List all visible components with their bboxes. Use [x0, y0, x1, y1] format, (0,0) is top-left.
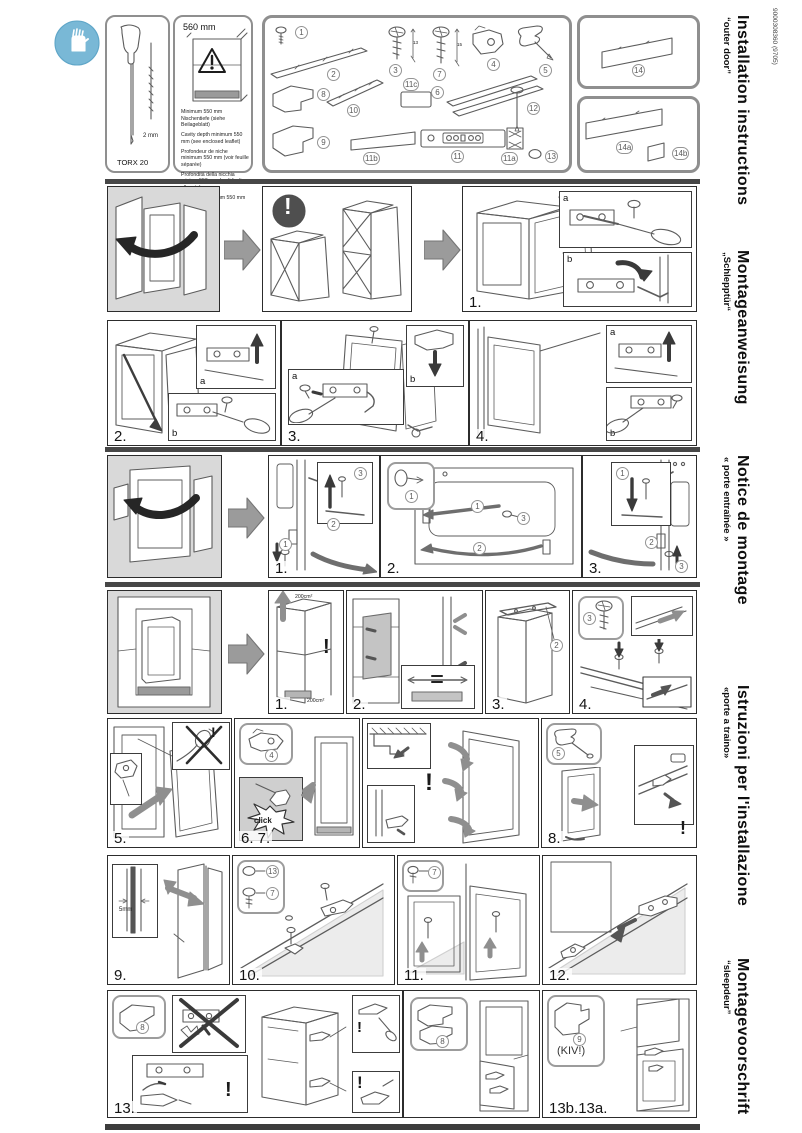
arrow-right-icon — [224, 228, 262, 272]
step-6-7-panel: 4 click 6. 7. — [234, 718, 360, 848]
callout-8: 8 — [436, 1035, 449, 1048]
step-3-panel: a b 3. — [281, 320, 469, 446]
exclamation-icon: ! — [284, 195, 292, 218]
slide-step-2-panel: 1 1 3 2 2. — [380, 455, 582, 578]
step-4-panel: a b 4. — [469, 320, 697, 446]
torx-label: TORX 20 — [117, 159, 148, 167]
slide-step-3-number: 3. — [587, 561, 604, 576]
exclamation-icon: ! — [357, 1020, 362, 1035]
step-9-panel: 5mm 9. — [107, 855, 230, 985]
door-align-panel: ! — [362, 718, 539, 848]
niche-fridge-sketch — [108, 591, 219, 711]
heading-it-title: Istruzioni per l'installazione — [733, 685, 751, 906]
screw7-length: 15 — [457, 42, 462, 47]
gloves-icon — [52, 18, 102, 68]
part-2-label: 2 — [327, 68, 340, 81]
cover-part-inset: 8 — [112, 995, 166, 1039]
callout-3: 3 — [675, 560, 688, 573]
plug-part-inset: 1 — [387, 462, 435, 510]
step-3-number: 3. — [286, 429, 303, 444]
part-7-label: 7 — [433, 68, 446, 81]
cover-pry-inset: ! — [352, 995, 400, 1053]
warning-triangle-icon — [197, 47, 227, 75]
step-13ab-number: 13b.13a. — [547, 1101, 609, 1116]
exclamation-icon: ! — [211, 725, 216, 739]
step-6-7-number: 6. 7. — [239, 831, 272, 846]
step-10-number: 10. — [237, 968, 262, 983]
callout-13: 13 — [266, 865, 279, 878]
bottom-corner-inset — [367, 785, 415, 843]
step-12-number: 12. — [547, 968, 572, 983]
step-3-inset-b: b — [406, 325, 464, 387]
section-divider — [105, 179, 700, 184]
bracket-down-sketch — [407, 326, 462, 385]
slider-detail-inset — [634, 745, 694, 825]
bracket-up-sketch — [607, 326, 690, 381]
rail-corner-sketch — [632, 597, 691, 634]
kiv-label: (KIV!) — [557, 1045, 585, 1057]
note-fr: Profondeur de niche minimum 550 mm (voir… — [181, 149, 249, 169]
part-1-label: 1 — [295, 26, 308, 39]
screw-part-inset: 3 — [578, 596, 624, 640]
callout-1: 1 — [471, 500, 484, 513]
part-5-label: 5 — [539, 64, 552, 77]
vent-cabinet-sketch — [269, 591, 341, 711]
niche-depth-panel: 560 mm Minimum 550 mm Nischentiefe (sieh… — [173, 15, 253, 173]
torx-tool-panel: 2 mm TORX 20 — [105, 15, 170, 173]
exclamation-icon: ! — [225, 1080, 232, 1100]
callout-3: 3 — [517, 512, 530, 525]
click-label: click — [254, 816, 272, 825]
cover-parts-inset: 8 — [410, 997, 468, 1051]
door-swap-overview-panel — [107, 186, 220, 312]
step-2-inset-a: a — [196, 325, 276, 389]
niche-overview-panel — [107, 590, 222, 714]
cover-fit-inset: ! — [352, 1071, 400, 1113]
step-2-panel: a b 2. — [107, 320, 281, 446]
callout-1: 1 — [279, 538, 292, 551]
note-de: Minimum 550 mm Nischentiefe (siehe Beila… — [181, 109, 249, 129]
exclamation-icon: ! — [425, 771, 433, 795]
part-11b-label: 11b — [363, 152, 380, 165]
vent-step-2-panel: 2. — [346, 590, 483, 714]
step-9-number: 9. — [112, 968, 129, 983]
part-6-label: 6 — [431, 86, 444, 99]
step-1-inset-a: a — [559, 191, 692, 248]
vent-step-2-number: 2. — [351, 697, 368, 712]
bit-size-label: 2 mm — [143, 133, 158, 140]
bracket-remove-sketch — [564, 253, 690, 305]
fridge-lower-door-sketch — [470, 995, 538, 1115]
fridge-two-doors-sketch — [609, 993, 697, 1117]
gap-detail-inset: 5mm — [112, 864, 158, 938]
heading-fr-title: Notice de montage — [733, 455, 751, 605]
clip-part-inset: 5 — [546, 723, 602, 765]
heading-de-subtitle: „Schlepptür“ — [721, 252, 732, 311]
step-2-number: 2. — [112, 429, 129, 444]
part-13-label: 13 — [545, 150, 558, 163]
callout-2: 2 — [645, 536, 658, 549]
step-4-inset-b: b — [606, 387, 692, 441]
part-14-label: 14 — [632, 64, 645, 77]
heading-nl-title: Montagevoorschrift — [733, 958, 751, 1115]
callout-7: 7 — [266, 887, 279, 900]
part-14-panel: 14 — [577, 15, 700, 89]
hinge-icon — [111, 754, 140, 803]
spacing-inset — [401, 665, 475, 709]
gap-size-label: 5mm — [119, 907, 132, 914]
no-plug-icon — [173, 723, 228, 768]
door-swap-sketch — [108, 187, 217, 309]
heading-de-title: Montageanweisung — [733, 250, 751, 405]
slide-door-sketch — [108, 456, 219, 575]
plug-warning-inset: ! — [172, 722, 230, 770]
document-code: 9000308360 (9705) — [771, 8, 778, 65]
step-4-number: 4. — [474, 429, 491, 444]
arrow-right-icon — [228, 496, 266, 540]
arrow-right-icon — [228, 632, 266, 676]
step-13-panel: 8 ! — [107, 990, 403, 1118]
part-11a-label: 11a — [501, 152, 518, 165]
gap-sketch — [113, 865, 156, 936]
heading-it-subtitle: «porte a traino» — [721, 687, 732, 758]
cross-out-icon — [173, 996, 244, 1051]
step-1-inset-b: b — [563, 252, 692, 307]
callout-8: 8 — [136, 1021, 149, 1034]
hinge-part-inset: 4 — [239, 723, 293, 765]
step-4-inset-a: a — [606, 325, 692, 383]
callout-4: 4 — [265, 749, 278, 762]
callout-5: 5 — [552, 747, 565, 760]
step-1-number: 1. — [467, 295, 484, 310]
heading-fr-subtitle: « porte entraînée » — [721, 457, 732, 541]
step-11-number: 11. — [402, 968, 426, 983]
top-gap-sketch — [368, 724, 429, 767]
rail-corner-inset — [631, 596, 693, 636]
instruction-sheet: 2 mm TORX 20 560 mm Minimum 550 mm Nisch… — [0, 0, 802, 1133]
vent-step-1-panel: 200cm² 200cm² ! 1. — [268, 590, 344, 714]
slide-step-3-panel: 1 2 3 3. — [582, 455, 697, 578]
step-5-number: 5. — [112, 831, 129, 846]
note-en: Cavity depth minimum 550 mm (see enclose… — [181, 132, 249, 145]
arrow-right-icon — [424, 228, 462, 272]
hinge-screws-sketch — [289, 370, 402, 423]
plate-screwdriver-sketch — [607, 388, 690, 439]
heading-nl-subtitle: “sleepdeur” — [721, 960, 732, 1014]
rail-detail-inset: 1 — [611, 462, 671, 526]
vent-step-4-number: 4. — [577, 697, 594, 712]
slider-clip-sketch — [635, 746, 692, 823]
heading-en-subtitle: “outer door” — [721, 17, 732, 74]
equal-spacing-sketch — [402, 666, 473, 707]
vent-step-3-panel: 2 3. — [485, 590, 570, 714]
callout-1: 1 — [616, 467, 629, 480]
step-1-panel: a b 1. — [462, 186, 697, 312]
parts-overview-panel: 1 2 13 3 15 7 4 5 8 10 11c 6 12 9 11b 11… — [262, 15, 572, 173]
callout-2: 2 — [550, 639, 563, 652]
part-11c-label: 11c — [403, 78, 419, 91]
step-3-inset-a: a — [288, 369, 404, 425]
callout-3: 3 — [583, 612, 596, 625]
step-8-panel: 5 ! 8. — [541, 718, 697, 848]
slide-step-1-panel: 3 2 1 1. — [268, 455, 380, 578]
callout-7: 7 — [428, 866, 441, 879]
step-10-panel: 13 7 10. — [232, 855, 395, 985]
hinge-screwdriver-sketch — [560, 192, 690, 246]
vent-step-3-number: 3. — [490, 697, 507, 712]
exclamation-icon: ! — [357, 1074, 363, 1091]
vent-bottom-label: 200cm² — [307, 699, 324, 705]
exclamation-icon: ! — [680, 819, 686, 837]
vent-step-4-panel: 3 4. — [572, 590, 697, 714]
plate-screwdriver-sketch — [169, 394, 274, 439]
callout-2: 2 — [473, 542, 486, 555]
part-11-label: 11 — [451, 150, 464, 163]
section-divider — [105, 582, 700, 587]
vent-step-1-number: 1. — [273, 697, 290, 712]
bracket-up-sketch — [197, 326, 274, 387]
exclamation-icon: ! — [323, 637, 330, 657]
section-divider — [105, 447, 700, 452]
part-14a-label: 14a — [616, 141, 633, 154]
fasteners-inset: 13 7 — [237, 860, 285, 914]
bottom-corner-sketch — [368, 786, 413, 841]
part-9-label: 9 — [317, 136, 330, 149]
screw-inset: 7 — [402, 860, 444, 892]
part-10-label: 10 — [347, 104, 360, 117]
slide-step-2-number: 2. — [385, 561, 402, 576]
callout-3: 3 — [354, 467, 367, 480]
door-gap-sketch — [160, 860, 227, 982]
step-2-inset-b: b — [168, 393, 276, 441]
covers-fit-panel: 8 — [403, 990, 540, 1118]
wrong-mount-inset — [172, 995, 246, 1053]
rail-detail-inset: 3 — [317, 462, 373, 524]
bottom-rail-sketch — [543, 856, 694, 982]
step-13ab-panel: 9 (KIV!) 13b.13a. — [542, 990, 697, 1118]
fridge-slide-sketch — [301, 729, 357, 841]
step-11-panel: 7 11. — [397, 855, 540, 985]
screw3-length: 13 — [413, 40, 418, 45]
part-12-label: 12 — [527, 102, 540, 115]
heading-en-title: Installation instructions — [733, 15, 751, 205]
part-14b-label: 14b — [672, 147, 689, 160]
slide-door-overview-panel — [107, 455, 222, 578]
callout-1: 1 — [405, 490, 418, 503]
vent-top-label: 200cm² — [295, 595, 312, 601]
kiv-part-inset: 9 (KIV!) — [547, 995, 605, 1067]
bottom-rule — [105, 1124, 700, 1130]
part-8-label: 8 — [317, 88, 330, 101]
step-5-panel: ! 5. — [107, 718, 232, 848]
part-3-label: 3 — [389, 64, 402, 77]
part-4-label: 4 — [487, 58, 500, 71]
slide-step-1-number: 1. — [273, 561, 290, 576]
top-gap-inset — [367, 723, 431, 769]
hinge-cover-inset: ! — [132, 1055, 248, 1113]
appliance-types-warning-panel: ! — [262, 186, 412, 312]
step-12-panel: 12. — [542, 855, 697, 985]
cabinet-covers-sketch — [254, 997, 350, 1113]
callout-2: 2 — [327, 518, 340, 531]
step-8-number: 8. — [546, 831, 563, 846]
hinge-part-inset — [110, 753, 142, 805]
step-13-number: 13. — [112, 1101, 137, 1116]
part-14ab-panel: 14a 14b — [577, 96, 700, 173]
open-door-sketch — [441, 723, 537, 845]
